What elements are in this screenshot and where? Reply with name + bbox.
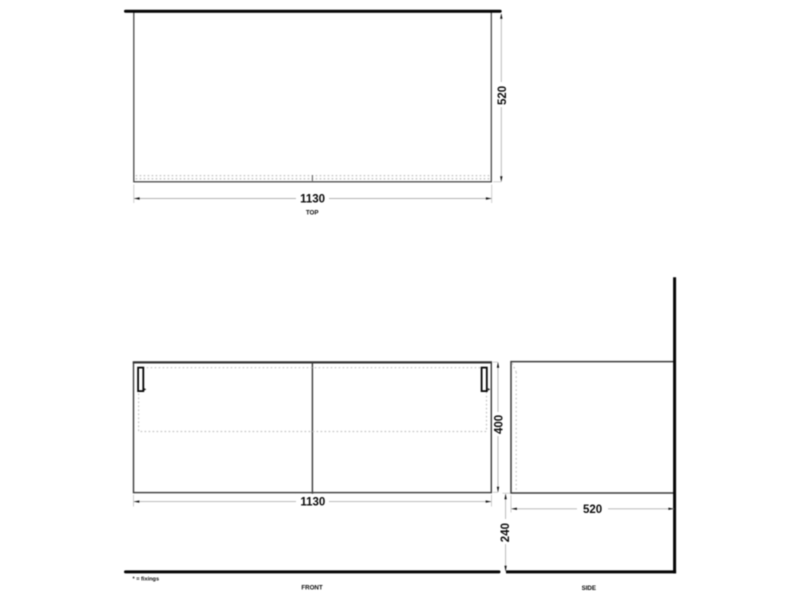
svg-text:TOP: TOP xyxy=(306,210,319,217)
svg-text:FRONT: FRONT xyxy=(301,585,323,592)
svg-text:520: 520 xyxy=(583,504,602,516)
svg-text:520: 520 xyxy=(497,86,509,105)
svg-text:240: 240 xyxy=(500,523,512,542)
svg-text:400: 400 xyxy=(493,415,505,434)
svg-text:1130: 1130 xyxy=(300,497,325,509)
svg-text:SIDE: SIDE xyxy=(582,585,596,592)
svg-text:* = fixings: * = fixings xyxy=(133,576,160,582)
svg-text:1130: 1130 xyxy=(300,194,325,206)
